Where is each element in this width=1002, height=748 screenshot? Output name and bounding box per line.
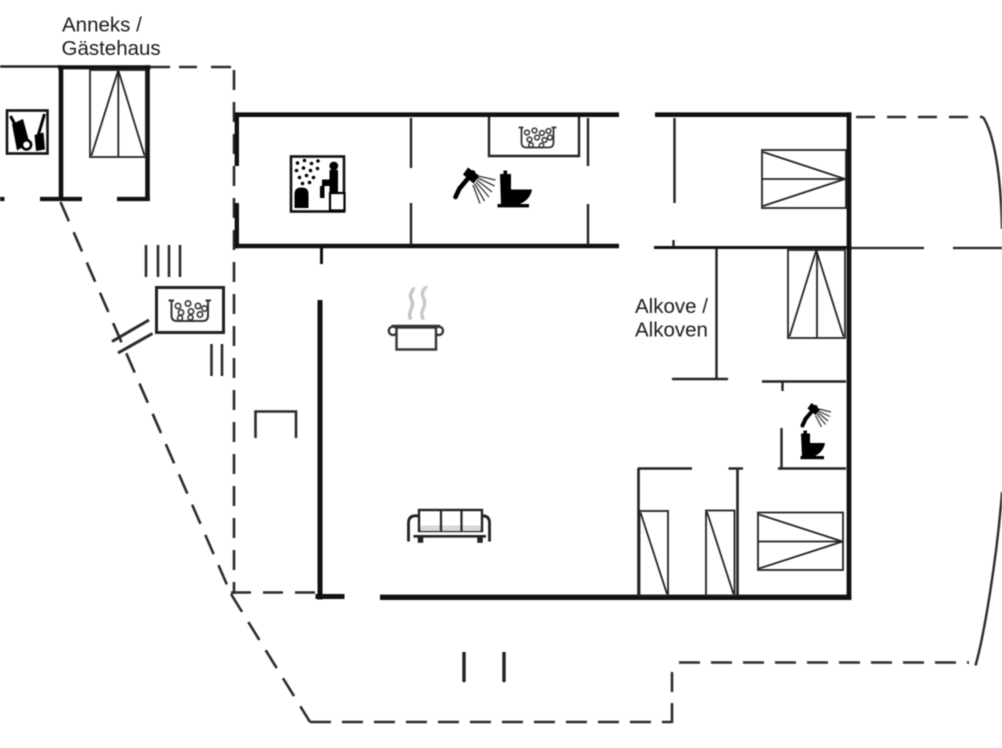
svg-text:Gästehaus: Gästehaus	[62, 37, 161, 60]
svg-text:Alkoven: Alkoven	[635, 319, 708, 342]
svg-text:Anneks /: Anneks /	[62, 14, 142, 37]
svg-text:Alkove /: Alkove /	[635, 295, 708, 318]
